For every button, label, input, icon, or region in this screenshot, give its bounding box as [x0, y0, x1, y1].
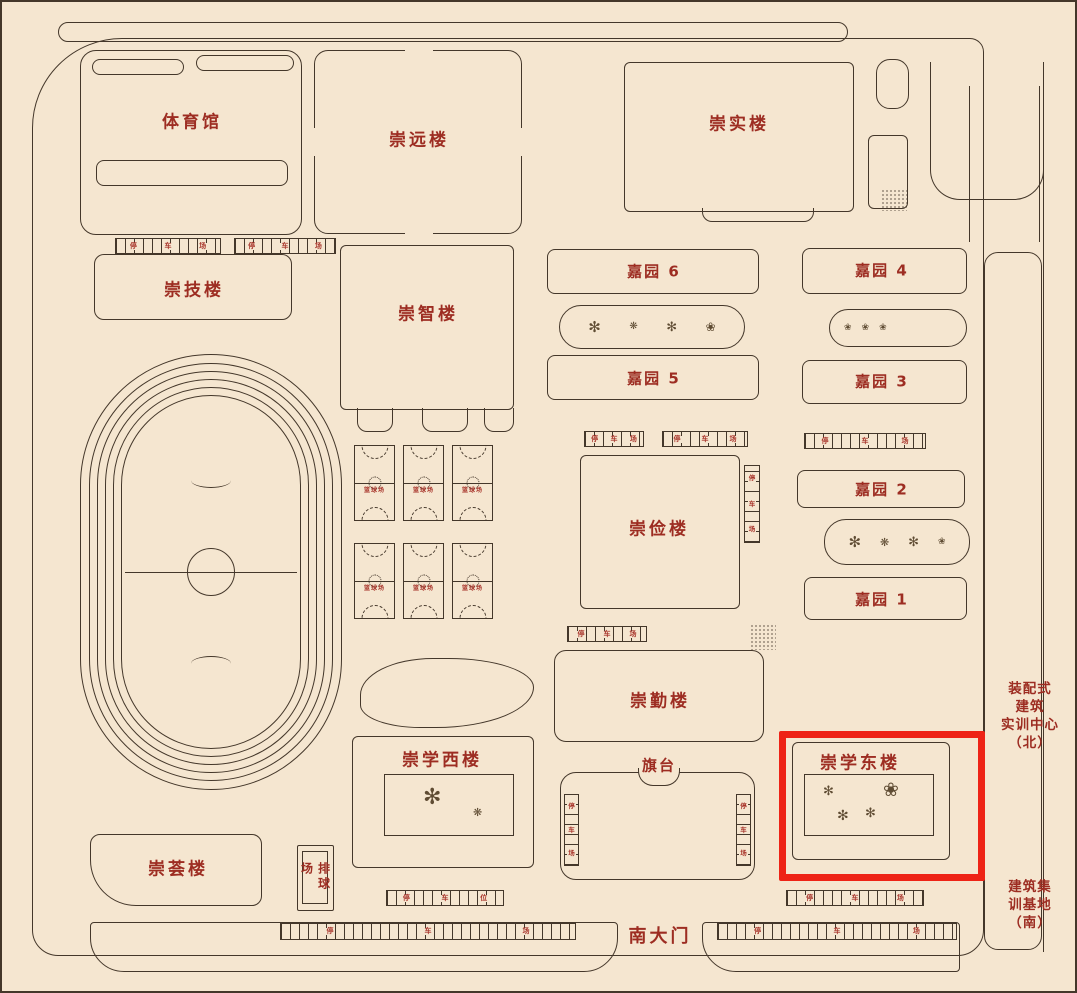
- annotation-north-facility: 装配式 建筑 实训中心 （北）: [982, 680, 1077, 752]
- basketball-court: 篮球场: [403, 445, 444, 521]
- flag-platform-label: 旗台: [642, 755, 676, 776]
- parking-char: 停: [805, 895, 814, 902]
- parking-char: 场: [739, 850, 748, 857]
- shrub-icon: ❋: [629, 322, 637, 332]
- basketball-court: 篮球场: [452, 445, 493, 521]
- parking-strip-chongjian-side: 停 车 场: [744, 465, 760, 543]
- court-key-top: [410, 445, 437, 459]
- chongzhi-tab-3: [484, 408, 514, 432]
- parking-char: 场: [629, 436, 638, 443]
- volleyball-court: 排球场: [297, 845, 334, 911]
- chongjian-label: 崇俭楼: [629, 515, 689, 540]
- basketball-court-label: 篮球场: [364, 485, 385, 494]
- court-key-top: [361, 445, 388, 459]
- parking-strip-flag-right: 停 车 场: [736, 794, 751, 866]
- parking-char: 场: [629, 631, 638, 638]
- parking-char: 场: [748, 526, 757, 533]
- parking-char: 车: [424, 928, 433, 935]
- chongyuan-gap-bottom: [405, 228, 433, 238]
- parking-char: 停: [247, 243, 256, 250]
- court-key-top: [410, 543, 437, 557]
- parking-strip-chongjian-right: 停 车 场: [662, 431, 748, 447]
- field-penalty-arc-bottom: [191, 656, 231, 671]
- garden-jiayuan-65: ✻ ❋ ✻ ❀: [559, 305, 745, 349]
- parking-strip-jiayuan2: 停 车 场: [804, 433, 926, 449]
- volleyball-label: 排球场: [299, 862, 333, 894]
- chongzhi-tab-1: [357, 408, 393, 432]
- court-key-bottom: [410, 605, 437, 619]
- parking-char: 场: [901, 438, 910, 445]
- court-key-bottom: [361, 507, 388, 521]
- chongyuan-label: 崇远楼: [389, 126, 449, 151]
- basketball-court-label: 篮球场: [413, 485, 434, 494]
- court-key-bottom: [361, 605, 388, 619]
- annotation-line: 建筑集: [982, 878, 1077, 896]
- basketball-court-label: 篮球场: [413, 583, 434, 592]
- red-highlight-box: [779, 731, 985, 881]
- basketball-court: 篮球场: [354, 445, 395, 521]
- parking-char: 车: [748, 501, 757, 508]
- annotation-south-facility: 建筑集 训基地 （南）: [982, 878, 1077, 932]
- parking-char: 场: [567, 850, 576, 857]
- parking-char: 停: [753, 928, 762, 935]
- south-gate-label: 南大门: [629, 922, 692, 948]
- parking-char: 场: [314, 243, 323, 250]
- basketball-court: 篮球场: [452, 543, 493, 619]
- flower-icon: ❀: [706, 321, 716, 333]
- parking-char: 车: [739, 827, 748, 834]
- jiayuan1-label: 嘉园 1: [855, 589, 909, 610]
- chongyuan-gap-top: [405, 46, 433, 56]
- road-right-edge-line: [1043, 62, 1044, 952]
- building-gym: [80, 50, 302, 235]
- parking-char: 车: [701, 436, 710, 443]
- parking-strip-south-left: 停 车 场: [280, 923, 576, 940]
- tree-icon: ✻: [848, 535, 861, 550]
- road-topright-inner: [969, 86, 1040, 242]
- chongji-label: 崇技楼: [164, 276, 224, 301]
- jiayuan4-label: 嘉园 4: [855, 260, 909, 281]
- tree-icon: ✻: [908, 536, 919, 549]
- parking-strip-south-right: 停 车 场: [717, 923, 957, 940]
- parking-char: 车: [280, 243, 289, 250]
- gym-top-bar-right: [196, 55, 294, 71]
- chongshi-bottom-tab: [702, 208, 814, 222]
- parking-char: 停: [673, 436, 682, 443]
- parking-char: 停: [567, 803, 576, 810]
- annotation-line: （北）: [982, 734, 1077, 752]
- jiayuan2-label: 嘉园 2: [855, 479, 909, 500]
- annotation-line: 实训中心: [982, 716, 1077, 734]
- parking-char: 车: [163, 243, 172, 250]
- chongxue-west-label: 崇学西楼: [402, 746, 482, 771]
- parking-char: 车: [567, 827, 576, 834]
- parking-strip-chongxue-east: 停 车 场: [786, 890, 924, 906]
- flower-icon: ❀: [862, 324, 870, 333]
- parking-char: 车: [850, 895, 859, 902]
- jiayuan5-label: 嘉园 5: [627, 368, 681, 389]
- parking-char: 停: [402, 895, 411, 902]
- court-key-bottom: [410, 507, 437, 521]
- chonghui-label: 崇荟楼: [148, 855, 208, 880]
- road-right-corridor: [984, 252, 1042, 950]
- parking-char: 停: [577, 631, 586, 638]
- parking-char: 场: [522, 928, 531, 935]
- chongyuan-gap-left: [310, 128, 320, 156]
- chongshi-label: 崇实楼: [709, 110, 769, 135]
- structure-topright-1: [876, 59, 909, 109]
- court-key-bottom: [459, 605, 486, 619]
- parking-strip-flag-left: 停 车 场: [564, 794, 579, 866]
- basketball-court-label: 篮球场: [462, 485, 483, 494]
- parking-char: 车: [609, 436, 618, 443]
- basketball-court: 篮球场: [354, 543, 395, 619]
- basketball-court: 篮球场: [403, 543, 444, 619]
- flower-icon: ❀: [938, 538, 946, 547]
- court-key-top: [361, 543, 388, 557]
- gym-label: 体育馆: [162, 108, 222, 133]
- flower-icon: ❀: [879, 324, 887, 333]
- parking-char: 停: [129, 243, 138, 250]
- shrub-icon: ❋: [880, 537, 889, 548]
- chongyuan-gap-right: [516, 128, 526, 156]
- running-track: [80, 354, 342, 790]
- garden-jiayuan-21: ✻ ❋ ✻ ❀: [824, 519, 970, 565]
- parking-strip-chongji-left: 停 车 场: [115, 238, 221, 254]
- annotation-line: 建筑: [982, 698, 1077, 716]
- chongzhi-tab-2: [422, 408, 468, 432]
- chongqin-label: 崇勤楼: [630, 687, 690, 712]
- parking-char: 车: [603, 631, 612, 638]
- flag-platform: [560, 772, 755, 880]
- parking-char: 停: [748, 475, 757, 482]
- field-penalty-arc-top: [191, 473, 231, 488]
- shrub-icon: ❋: [473, 807, 482, 818]
- jiayuan3-label: 嘉园 3: [855, 371, 909, 392]
- gym-top-bar-left: [92, 59, 184, 75]
- campus-map: 体育馆 崇远楼 崇实楼 停 车 场 停 车 场 崇技楼 崇智楼 嘉园 6 ✻ ❋…: [0, 0, 1077, 993]
- jiayuan6-label: 嘉园 6: [627, 261, 681, 282]
- building-chongshi: [624, 62, 854, 212]
- field-center-circle: [187, 548, 235, 596]
- annotation-line: 装配式: [982, 680, 1077, 698]
- parking-strip-chongqin: 停 车 场: [567, 626, 647, 642]
- parking-strip-chongji-right: 停 车 场: [234, 238, 336, 254]
- hatch-topright: [881, 189, 907, 211]
- parking-char: 场: [896, 895, 905, 902]
- parking-char: 位: [479, 895, 488, 902]
- court-key-top: [459, 445, 486, 459]
- chongxue-west-courtyard: ✻ ❋: [384, 774, 514, 836]
- tree-icon: ✻: [588, 320, 601, 335]
- basketball-court-label: 篮球场: [364, 583, 385, 592]
- parking-char: 停: [821, 438, 830, 445]
- hatch-chongqin: [750, 624, 776, 650]
- parking-char: 场: [729, 436, 738, 443]
- parking-char: 停: [739, 803, 748, 810]
- gym-bottom-bar: [96, 160, 288, 186]
- flower-icon: ❀: [844, 324, 852, 333]
- tree-icon: ✻: [423, 787, 441, 809]
- garden-jiayuan-43: ❀ ❀ ❀: [829, 309, 967, 347]
- parking-char: 停: [590, 436, 599, 443]
- basketball-court-label: 篮球场: [462, 583, 483, 592]
- parking-char: 车: [861, 438, 870, 445]
- court-key-top: [459, 543, 486, 557]
- parking-char: 场: [912, 928, 921, 935]
- annotation-line: （南）: [982, 914, 1077, 932]
- parking-strip-chongxue-west: 停 车 位: [386, 890, 504, 906]
- building-chongzhi: [340, 245, 514, 410]
- parking-strip-chongjian-left: 停 车 场: [584, 431, 644, 447]
- parking-char: 停: [326, 928, 335, 935]
- parking-char: 场: [198, 243, 207, 250]
- annotation-line: 训基地: [982, 896, 1077, 914]
- parking-char: 车: [440, 895, 449, 902]
- road-top-strip: [58, 22, 848, 42]
- chongzhi-label: 崇智楼: [398, 300, 458, 325]
- court-key-bottom: [459, 507, 486, 521]
- tree-icon: ✻: [666, 321, 677, 334]
- parking-char: 车: [832, 928, 841, 935]
